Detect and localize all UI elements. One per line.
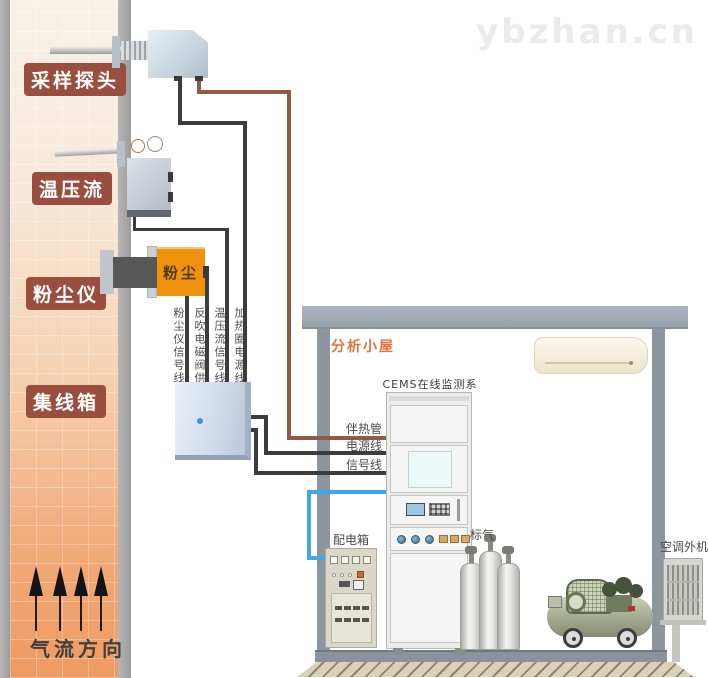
dust-meter-body: 粉尘 <box>157 247 205 296</box>
probe-wall-flange <box>112 36 120 68</box>
sampling-probe-box <box>148 30 208 78</box>
signal-line-label: 信号线 <box>346 456 382 473</box>
controller-keypad <box>429 503 450 516</box>
controller-gauge <box>457 499 460 521</box>
outdoor-ac-pole <box>672 624 680 662</box>
ground-hatch <box>297 662 694 677</box>
vent-slot <box>335 606 342 610</box>
airflow-direction-label: 气流方向 <box>30 633 126 662</box>
heater-power-wire <box>178 76 182 123</box>
heater-power-wire <box>178 121 247 125</box>
vent-slot <box>362 618 369 622</box>
controller-lcd <box>406 503 425 516</box>
tpf-transmitter-base <box>127 210 171 217</box>
sample-tube-wire <box>307 490 311 560</box>
cylinder-valve-stem <box>488 542 493 551</box>
main-switch <box>339 581 350 587</box>
power-line-label: 电源线 <box>346 437 382 454</box>
compressor-wheel <box>617 628 637 648</box>
cylinder-valve <box>465 546 477 554</box>
outdoor-ac-separator <box>667 599 699 601</box>
shelter-floor <box>315 650 667 662</box>
tpf-sensor-wire-loop <box>147 136 163 152</box>
up-arrow-icon <box>29 566 43 596</box>
cabinet-top-trim <box>389 396 469 401</box>
cabinet-foot <box>393 648 403 654</box>
up-arrow-stem <box>59 595 61 631</box>
breaker-window <box>330 556 338 564</box>
gauge-knob <box>397 535 406 544</box>
probe-coupler <box>121 41 148 60</box>
cabinet-blank-panel <box>390 405 468 443</box>
standard-gas-label: 标气 <box>470 526 494 543</box>
gauge-knob <box>411 535 420 544</box>
indicator-lamp <box>340 573 344 577</box>
tpf-sensor-wire-loop <box>131 139 145 153</box>
power-distribution-box-label: 配电箱 <box>333 531 369 548</box>
compressor-motor-box <box>548 596 562 608</box>
up-arrow-icon <box>53 566 67 596</box>
heat-traced-tube-wire <box>197 90 291 94</box>
cylinder-valve <box>502 546 514 554</box>
indoor-ac-unit <box>534 337 648 374</box>
heater-power-wire <box>243 121 247 385</box>
junction-box-lock <box>197 418 203 424</box>
cabinet-window <box>408 451 452 488</box>
vent-slot <box>362 606 369 610</box>
tpf-side-port <box>168 172 173 182</box>
indicator-lamp <box>332 573 336 577</box>
up-arrow-icon <box>74 566 88 596</box>
chimney-right-wall <box>118 0 131 678</box>
dust-meter-port <box>203 266 209 278</box>
regulator-button <box>461 535 470 543</box>
vent-slot <box>353 618 360 622</box>
up-arrow-icon <box>94 566 108 596</box>
indicator-lamp <box>348 573 352 577</box>
indoor-ac-indicator <box>629 361 633 365</box>
outdoor-ac-bracket <box>660 620 706 625</box>
power-socket <box>353 580 364 590</box>
cabinet-lower-panel <box>390 553 468 643</box>
heat-traced-tube-label: 伴热管 <box>346 420 382 437</box>
vent-panel <box>331 593 372 643</box>
power-distribution-box <box>325 548 377 648</box>
outdoor-ac-grille <box>667 565 699 615</box>
tpf-transmitter-box <box>127 158 171 216</box>
wheel-hub <box>572 637 576 641</box>
compressor-wheel <box>563 628 583 648</box>
junction-box <box>175 382 251 460</box>
wire-label-dust-signal: 粉尘仪信号线 <box>170 307 186 385</box>
sample-tube-wire <box>307 490 387 494</box>
breaker-window <box>341 556 349 564</box>
tpf-side-port <box>168 192 173 202</box>
shelter-title: 分析小屋 <box>331 336 395 356</box>
label-sampling-probe: 采样探头 <box>24 63 126 96</box>
cems-system-diagram: ybzhan.cn 采样探头 温压流 粉尘仪 集线箱 气流方向 粉尘 粉尘仪信号… <box>0 0 708 678</box>
watermark: ybzhan.cn <box>476 12 698 52</box>
regulator-button <box>439 535 448 543</box>
wheel-hub <box>626 637 630 641</box>
chimney-left-wall <box>0 0 10 678</box>
dust-signal-wire <box>185 296 189 385</box>
signal-line-wire <box>254 428 258 475</box>
shelter-roof <box>302 306 688 329</box>
cylinder-valve-stem <box>469 554 474 563</box>
label-dust-meter: 粉尘仪 <box>26 277 106 310</box>
tpf-wall-flange <box>117 141 125 167</box>
indoor-ac-vent <box>545 362 633 364</box>
heat-traced-tube-wire <box>287 90 291 440</box>
compressor-valve <box>628 606 635 611</box>
breaker-window <box>352 556 360 564</box>
compressor-cylinder-head <box>629 584 643 598</box>
probe-cable-gland <box>174 76 182 81</box>
outdoor-ac-unit <box>663 558 703 622</box>
up-arrow-stem <box>80 595 82 631</box>
up-arrow-stem <box>35 595 37 631</box>
gas-cylinder <box>497 563 520 650</box>
label-temp-pressure-flow: 温压流 <box>32 172 112 205</box>
dust-meter-mount-block <box>113 257 158 288</box>
compressor-pulley <box>566 592 586 612</box>
outdoor-ac-separator <box>667 581 699 583</box>
tpf-signal-wire <box>133 228 228 231</box>
up-arrow-stem <box>100 595 102 631</box>
gauge-knob <box>425 535 434 544</box>
vent-slot <box>344 606 351 610</box>
vent-slot <box>335 618 342 622</box>
tpf-signal-wire <box>225 228 229 385</box>
vent-slot <box>344 618 351 622</box>
power-line-wire <box>264 415 268 455</box>
blowback-power-wire <box>205 276 209 385</box>
outdoor-ac-label: 空调外机 <box>660 538 708 555</box>
emergency-button <box>357 571 364 578</box>
breaker-window <box>363 556 371 564</box>
dust-meter-wall-flange <box>100 250 114 294</box>
label-junction-box: 集线箱 <box>26 385 106 418</box>
cylinder-valve-stem <box>506 554 511 563</box>
probe-cable-gland <box>195 76 203 81</box>
regulator-button <box>450 535 459 543</box>
vent-slot <box>353 606 360 610</box>
